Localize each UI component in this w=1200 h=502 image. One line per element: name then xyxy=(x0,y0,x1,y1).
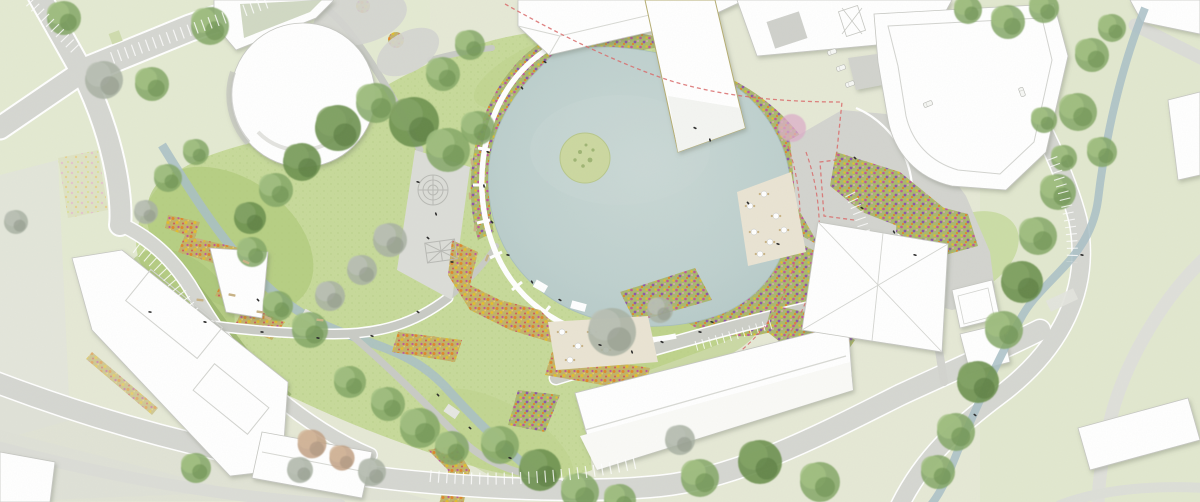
blossom-tree xyxy=(778,114,806,142)
pond-island xyxy=(560,133,610,183)
site-plan-canvas xyxy=(0,0,1200,502)
